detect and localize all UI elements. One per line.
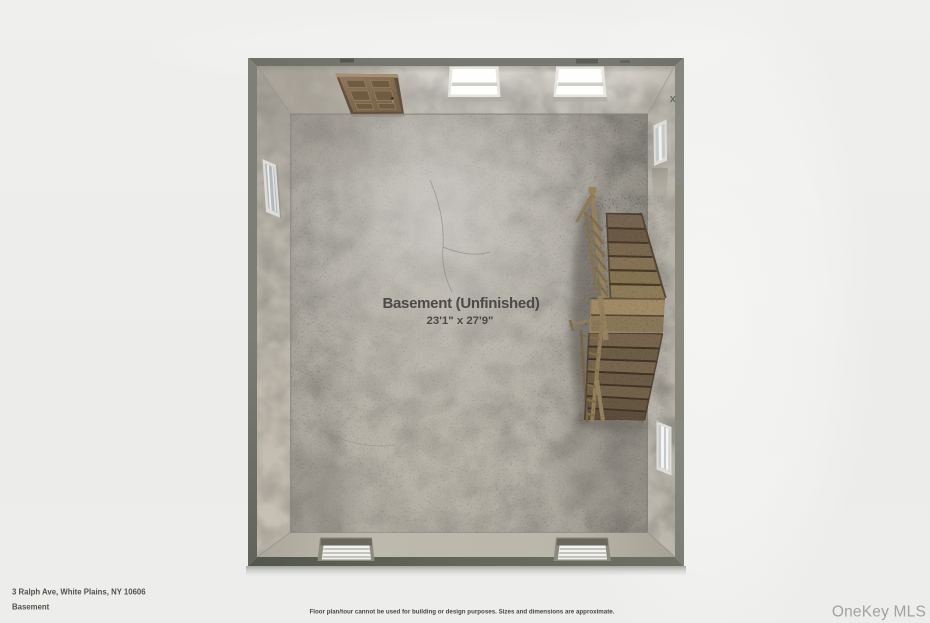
svg-text:3 Ralph Ave, White Plains, NY: 3 Ralph Ave, White Plains, NY 10606	[12, 588, 146, 597]
svg-text:23'1" x 27'9": 23'1" x 27'9"	[427, 315, 494, 327]
svg-text:Floor plan/tour cannot be used: Floor plan/tour cannot be used for build…	[310, 609, 615, 616]
svg-text:OneKey MLS: OneKey MLS	[832, 604, 926, 621]
svg-text:Basement (Unfinished): Basement (Unfinished)	[382, 295, 539, 312]
svg-text:Basement: Basement	[12, 603, 50, 612]
